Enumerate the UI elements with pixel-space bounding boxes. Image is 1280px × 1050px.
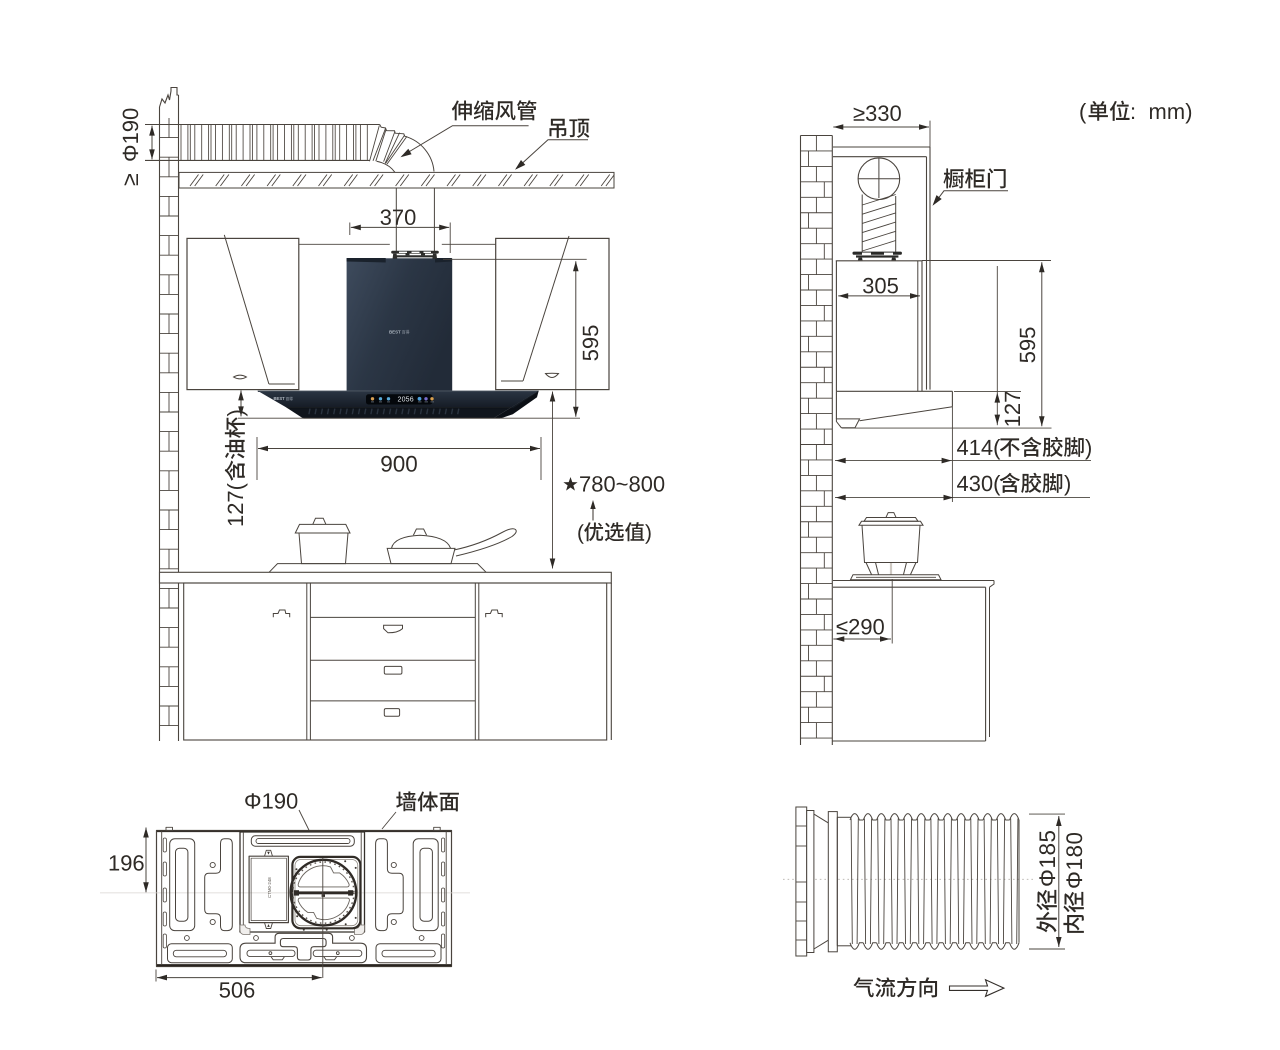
svg-text:BEST 百得: BEST 百得 xyxy=(389,330,410,335)
svg-text:2056: 2056 xyxy=(398,397,414,404)
svg-text:BEST 百得: BEST 百得 xyxy=(274,396,294,401)
svg-text:CTM0-248: CTM0-248 xyxy=(267,877,272,898)
